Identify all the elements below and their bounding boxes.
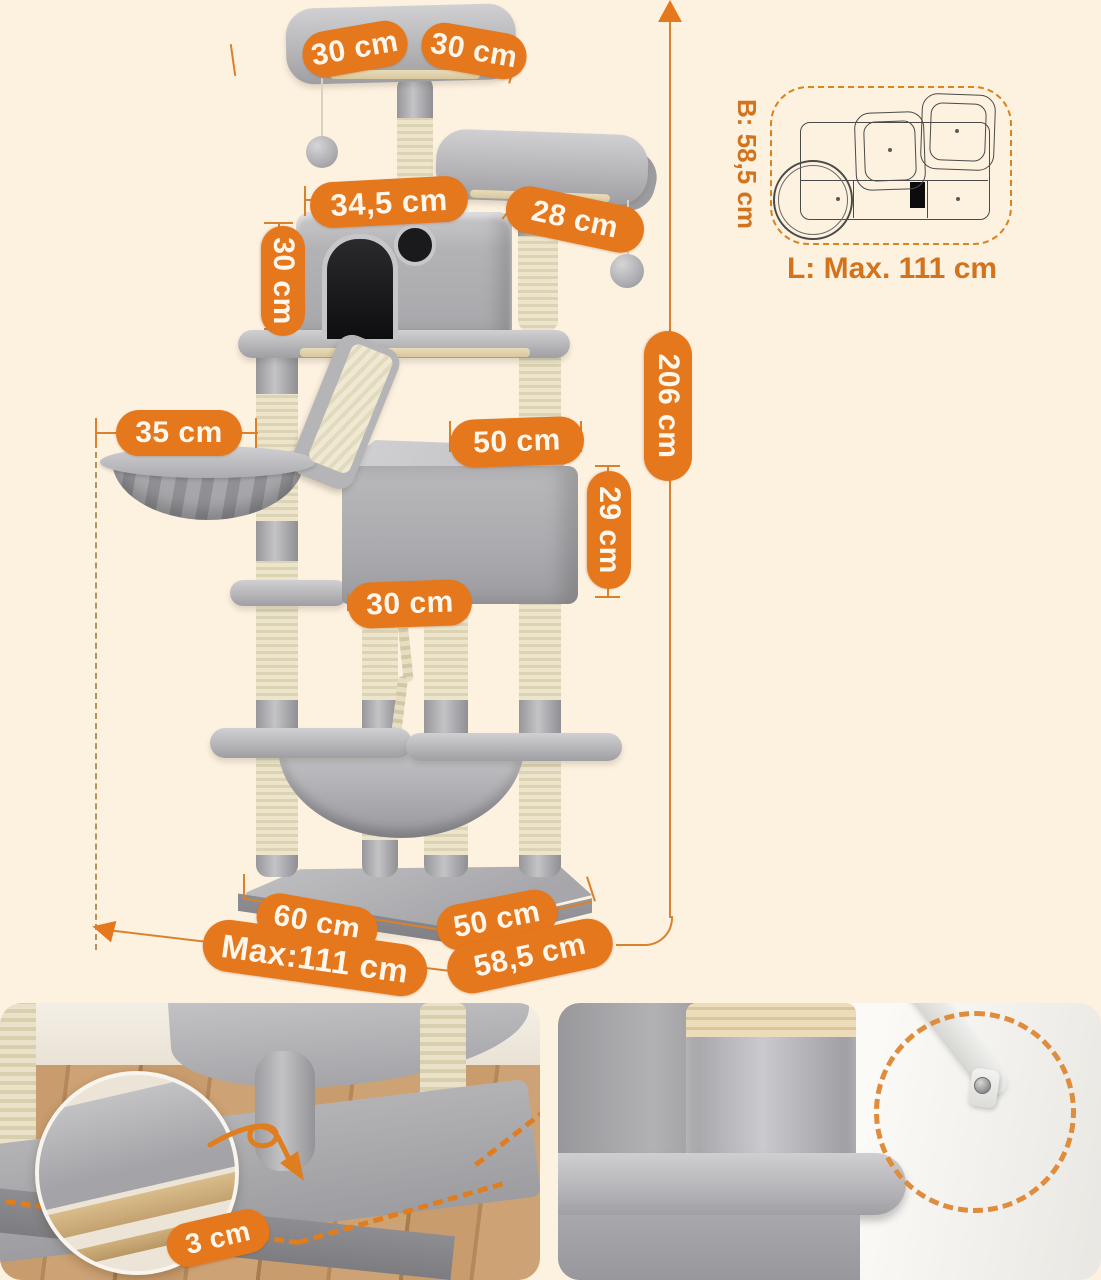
plush-platform xyxy=(558,1153,906,1215)
footprint-dot xyxy=(956,197,960,201)
tick xyxy=(264,222,293,224)
pompom-ball-right xyxy=(610,254,644,288)
pompom-string xyxy=(321,78,323,140)
tick xyxy=(595,596,620,598)
tick xyxy=(243,874,245,900)
photo-wall-strap-closeup xyxy=(558,1003,1101,1280)
footprint-length-label: L: Max. 111 cm xyxy=(785,252,999,286)
sisal-post-edge xyxy=(0,1003,36,1153)
side-shelf xyxy=(230,580,348,606)
hammock-platform-left xyxy=(210,728,412,758)
dim-house-width: 34,5 cm xyxy=(309,175,469,229)
pompom-ball xyxy=(306,136,338,168)
footprint-dot xyxy=(836,197,840,201)
scratching-post-left xyxy=(256,346,298,877)
loop-arrow-icon xyxy=(206,1103,316,1203)
footprint-divider xyxy=(853,180,854,218)
plush-below-platform xyxy=(558,1215,860,1280)
footprint-basket-circle xyxy=(773,160,853,240)
tick xyxy=(595,465,620,467)
tick xyxy=(95,418,97,448)
tick xyxy=(304,186,306,216)
dim-shelf-width: 30 cm xyxy=(347,579,473,629)
dim-basket-width: 35 cm xyxy=(116,410,242,456)
sisal-rope-wrap xyxy=(686,1003,856,1037)
product-dimension-infographic: 30 cm 30 cm 34,5 cm 28 cm 30 cm 35 cm 50… xyxy=(0,0,1101,1280)
dim-total-height: 206 cm xyxy=(644,331,692,481)
left-dashed-line xyxy=(95,452,97,950)
up-arrow-icon xyxy=(658,0,682,22)
photo-base-closeup: 3 cm xyxy=(0,1003,540,1280)
cat-tree-photo xyxy=(0,0,760,1000)
hammock-platform-right xyxy=(406,733,622,761)
highlight-dashed-circle xyxy=(874,1011,1076,1213)
footprint-dot xyxy=(888,148,892,152)
dim-condo-height: 29 cm xyxy=(587,471,631,589)
footprint-divider xyxy=(927,180,928,218)
footprint-dot xyxy=(955,129,959,133)
tick xyxy=(255,418,257,448)
cat-house-door xyxy=(322,234,398,339)
footprint-width-label: B: 58,5 cm xyxy=(734,89,762,239)
dim-house-height: 30 cm xyxy=(261,226,305,336)
cat-house-window xyxy=(394,224,436,266)
dim-condo-width: 50 cm xyxy=(449,416,585,469)
